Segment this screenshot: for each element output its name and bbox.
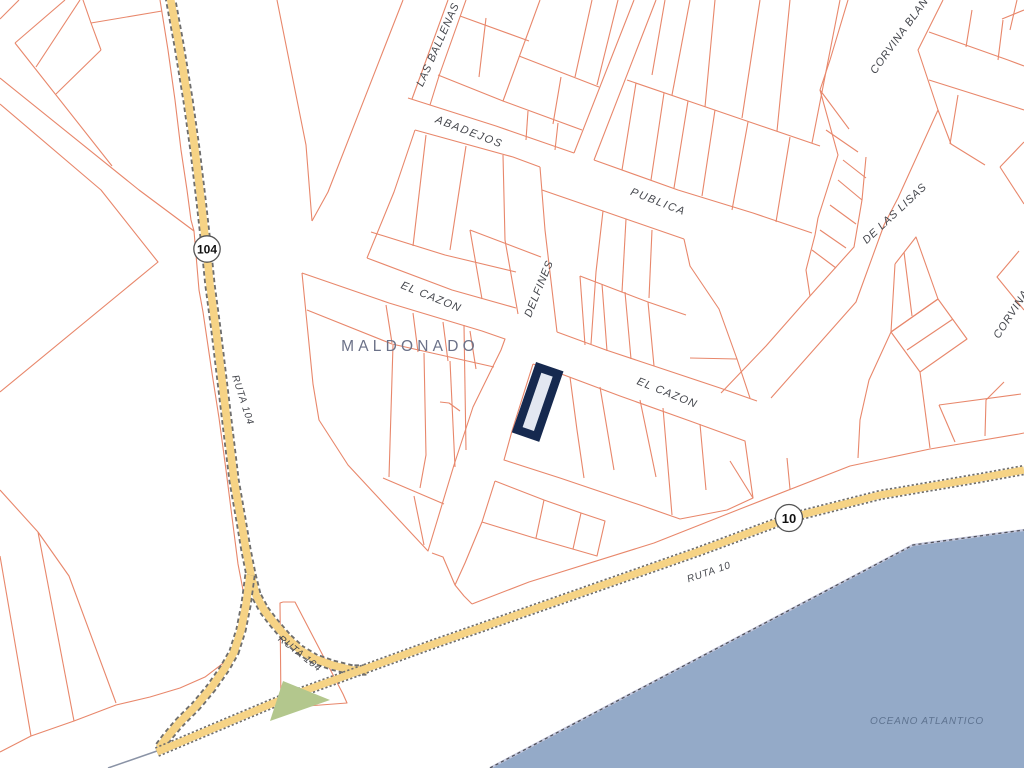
svg-text:10: 10 [782, 511, 796, 526]
svg-text:104: 104 [197, 243, 217, 257]
svg-text:OCEANO ATLANTICO: OCEANO ATLANTICO [870, 716, 984, 727]
svg-text:MALDONADO: MALDONADO [341, 338, 479, 355]
